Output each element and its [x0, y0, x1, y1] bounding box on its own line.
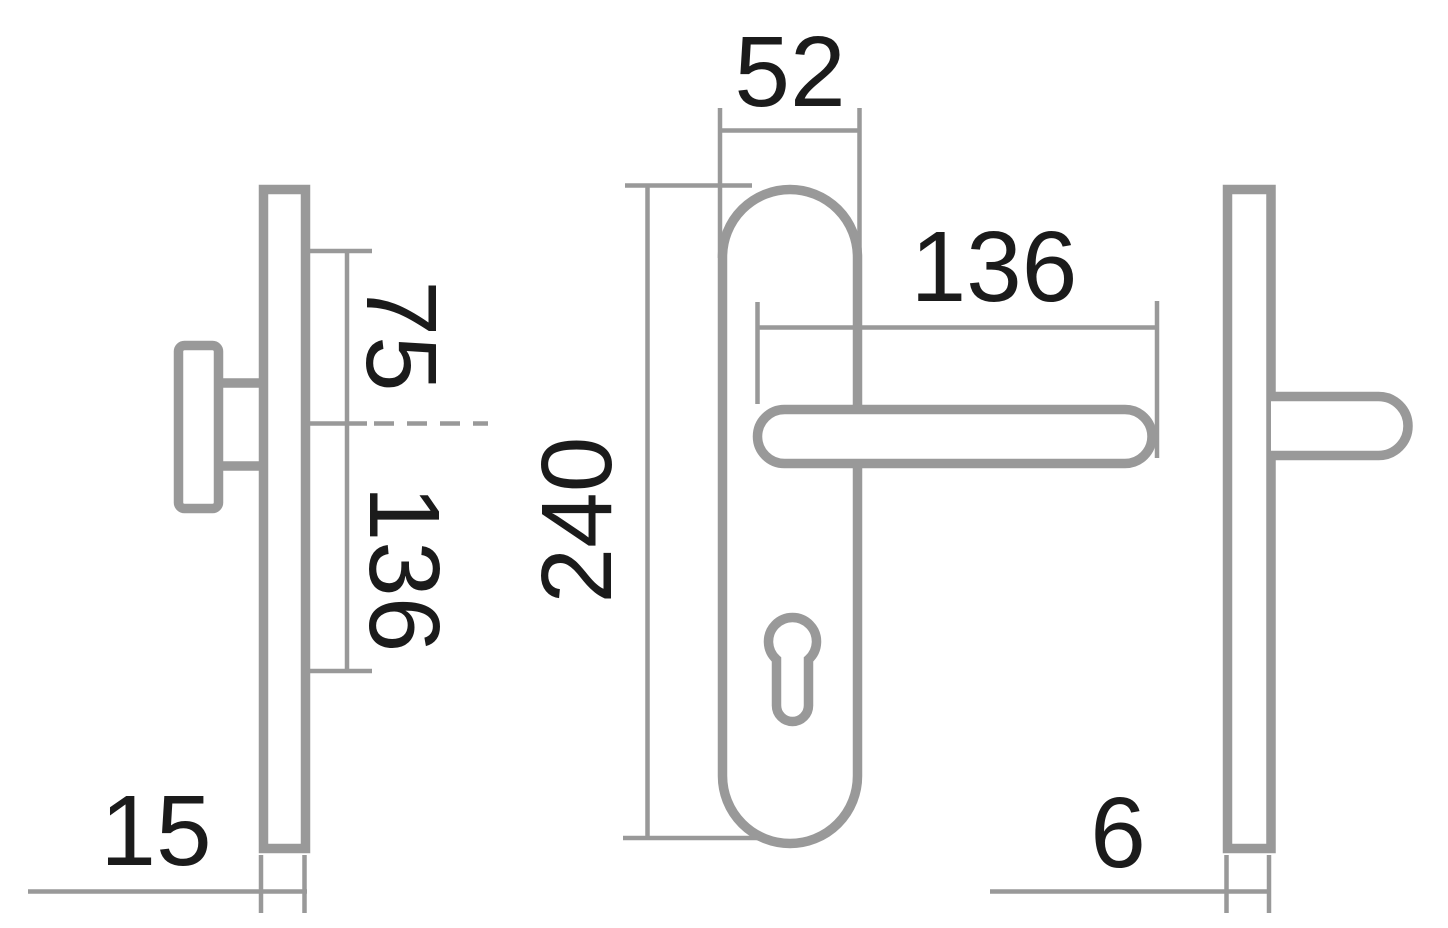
door-fitting-dimension-drawing: 52 136 240 75 136 15 6 [0, 0, 1448, 928]
left-side-view [179, 190, 306, 849]
lever-handle-side-outline [1271, 397, 1408, 456]
technical-drawing-page: 52 136 240 75 136 15 6 [0, 0, 1448, 928]
outer-plate-side-outline [1228, 190, 1272, 849]
euro-cylinder-keyhole-outline [769, 618, 817, 722]
right-side-view [1228, 190, 1409, 849]
front-view [723, 190, 858, 844]
dimension-label-lower-offset: 136 [348, 486, 460, 653]
dimension-label-plate-height: 240 [521, 437, 633, 604]
front-plate-outline [723, 190, 858, 844]
dimension-label-upper-offset: 75 [345, 280, 457, 391]
dimension-label-inner-thickness: 15 [100, 775, 211, 887]
lever-handle-front-outline [758, 410, 1153, 464]
dimension-label-outer-thickness: 6 [1090, 777, 1146, 889]
knob-side-outline [179, 346, 219, 509]
dimension-label-handle-length: 136 [911, 211, 1078, 323]
dimension-label-plate-width: 52 [734, 16, 845, 128]
inner-plate-side-outline [264, 190, 306, 849]
